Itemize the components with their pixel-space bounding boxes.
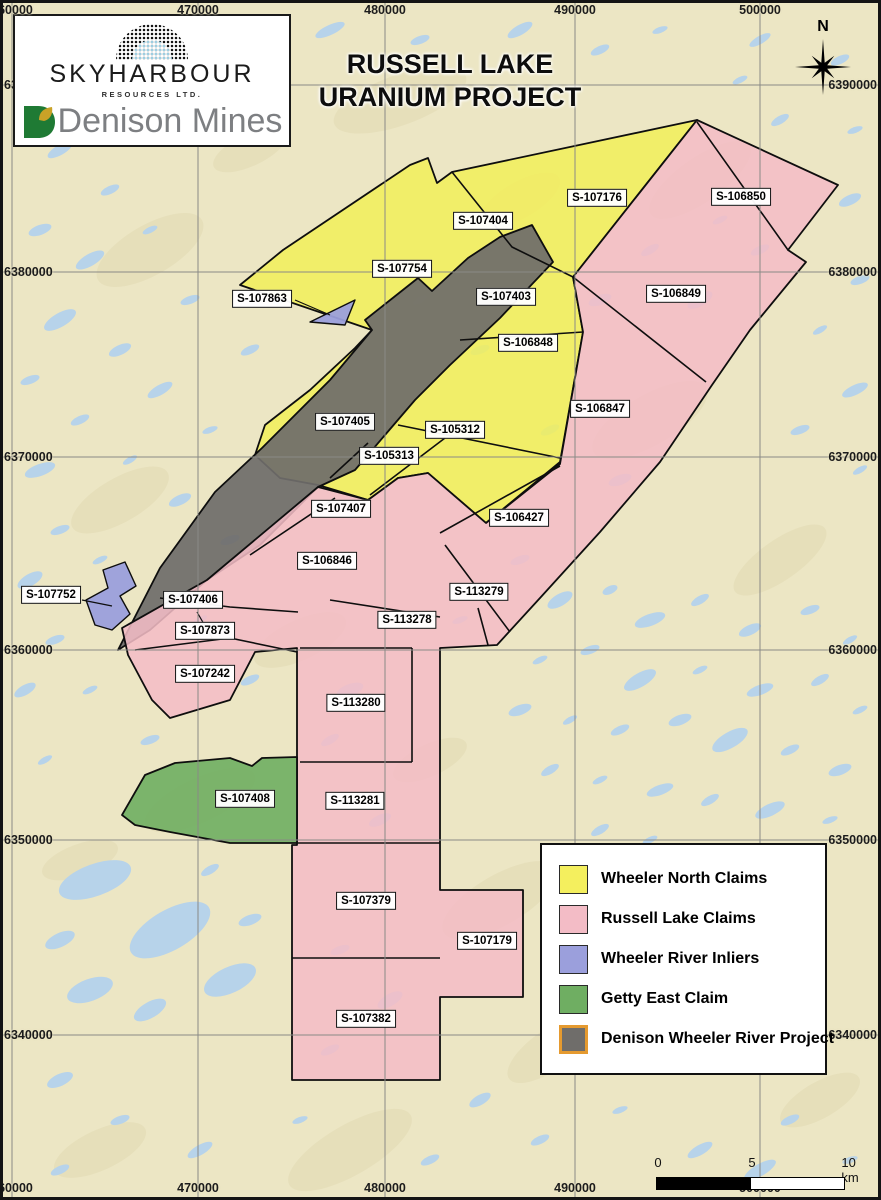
- map-title-line1: RUSSELL LAKE: [310, 48, 590, 81]
- grid-label-top-460000: 460000: [0, 3, 33, 17]
- claim-label-S-106847: S-106847: [570, 400, 630, 418]
- claim-label-S-105313: S-105313: [359, 447, 419, 465]
- claim-label-S-113278: S-113278: [377, 611, 436, 629]
- claim-label-S-107403: S-107403: [476, 288, 536, 306]
- legend-swatch-2: [559, 945, 588, 974]
- grid-label-right-6340000: 6340000: [828, 1028, 877, 1042]
- legend-label-4: Denison Wheeler River Project: [601, 1030, 834, 1048]
- legend-label-2: Wheeler River Inliers: [601, 950, 759, 968]
- skyharbour-dome-icon: [114, 24, 190, 60]
- legend-item-1: Russell Lake Claims: [559, 899, 825, 939]
- compass-star-icon: [793, 36, 853, 98]
- claim-label-S-107382: S-107382: [336, 1010, 396, 1028]
- claim-label-S-107405: S-107405: [315, 413, 375, 431]
- denison-mines-name: Denison Mines: [58, 102, 283, 141]
- claim-label-S-107404: S-107404: [453, 212, 513, 230]
- grid-label-left-6360000: 6360000: [4, 643, 53, 657]
- claim-label-S-107242: S-107242: [175, 665, 235, 683]
- claim-label-S-106427: S-106427: [489, 509, 549, 527]
- claim-label-S-105312: S-105312: [425, 421, 485, 439]
- legend-swatch-3: [559, 985, 588, 1014]
- grid-label-right-6380000: 6380000: [828, 265, 877, 279]
- legend-item-4: Denison Wheeler River Project: [559, 1019, 825, 1059]
- claim-label-S-107408: S-107408: [215, 790, 275, 808]
- logo-box: SKYHARBOUR RESOURCES LTD. Denison Mines: [13, 14, 291, 147]
- claim-label-S-106846: S-106846: [297, 552, 357, 570]
- skyharbour-name: SKYHARBOUR: [15, 60, 289, 89]
- scale-label-1: 5: [748, 1155, 755, 1170]
- grid-label-top-500000: 500000: [739, 3, 781, 17]
- legend-label-3: Getty East Claim: [601, 990, 728, 1008]
- legend-swatch-1: [559, 905, 588, 934]
- grid-label-top-480000: 480000: [364, 3, 406, 17]
- grid-label-right-6350000: 6350000: [828, 833, 877, 847]
- claim-label-S-107754: S-107754: [372, 260, 432, 278]
- skyharbour-subtitle: RESOURCES LTD.: [15, 90, 289, 99]
- grid-label-bottom-490000: 490000: [554, 1181, 596, 1195]
- grid-label-bottom-470000: 470000: [177, 1181, 219, 1195]
- grid-label-top-470000: 470000: [177, 3, 219, 17]
- claim-label-S-107406: S-107406: [163, 591, 223, 609]
- claim-label-S-107407: S-107407: [311, 500, 371, 518]
- legend: Wheeler North ClaimsRussell Lake ClaimsW…: [540, 843, 827, 1075]
- legend-swatch-0: [559, 865, 588, 894]
- scale-bar: 0510 km: [645, 1155, 860, 1195]
- map-title-line2: URANIUM PROJECT: [310, 81, 590, 114]
- claim-label-S-107873: S-107873: [175, 622, 235, 640]
- grid-label-right-6370000: 6370000: [828, 450, 877, 464]
- grid-label-bottom-460000: 460000: [0, 1181, 33, 1195]
- claim-label-S-107179: S-107179: [457, 932, 517, 950]
- claim-label-S-106849: S-106849: [646, 285, 706, 303]
- north-label: N: [793, 18, 853, 36]
- grid-label-top-490000: 490000: [554, 3, 596, 17]
- legend-item-2: Wheeler River Inliers: [559, 939, 825, 979]
- scale-bar-rule: [656, 1177, 845, 1190]
- map-title: RUSSELL LAKE URANIUM PROJECT: [310, 48, 590, 114]
- north-arrow: N: [793, 18, 853, 108]
- legend-label-1: Russell Lake Claims: [601, 910, 756, 928]
- claim-label-S-107176: S-107176: [567, 189, 627, 207]
- claim-label-S-106850: S-106850: [711, 188, 771, 206]
- legend-label-0: Wheeler North Claims: [601, 870, 767, 888]
- claim-label-S-113280: S-113280: [326, 694, 385, 712]
- grid-label-left-6340000: 6340000: [4, 1028, 53, 1042]
- legend-item-3: Getty East Claim: [559, 979, 825, 1019]
- grid-label-left-6370000: 6370000: [4, 450, 53, 464]
- claim-label-S-107379: S-107379: [336, 892, 396, 910]
- claim-label-S-107863: S-107863: [232, 290, 292, 308]
- claim-label-S-113279: S-113279: [449, 583, 508, 601]
- grid-label-bottom-480000: 480000: [364, 1181, 406, 1195]
- denison-mines-icon: [22, 104, 56, 140]
- claim-label-S-106848: S-106848: [498, 334, 558, 352]
- scale-label-0: 0: [654, 1155, 661, 1170]
- legend-swatch-4: [559, 1025, 588, 1054]
- grid-label-left-6350000: 6350000: [4, 833, 53, 847]
- claim-label-S-113281: S-113281: [325, 792, 384, 810]
- grid-label-right-6360000: 6360000: [828, 643, 877, 657]
- claim-label-S-107752: S-107752: [21, 586, 81, 604]
- legend-item-0: Wheeler North Claims: [559, 859, 825, 899]
- map-canvas: 4600004600004700004700004800004800004900…: [0, 0, 881, 1200]
- grid-label-left-6380000: 6380000: [4, 265, 53, 279]
